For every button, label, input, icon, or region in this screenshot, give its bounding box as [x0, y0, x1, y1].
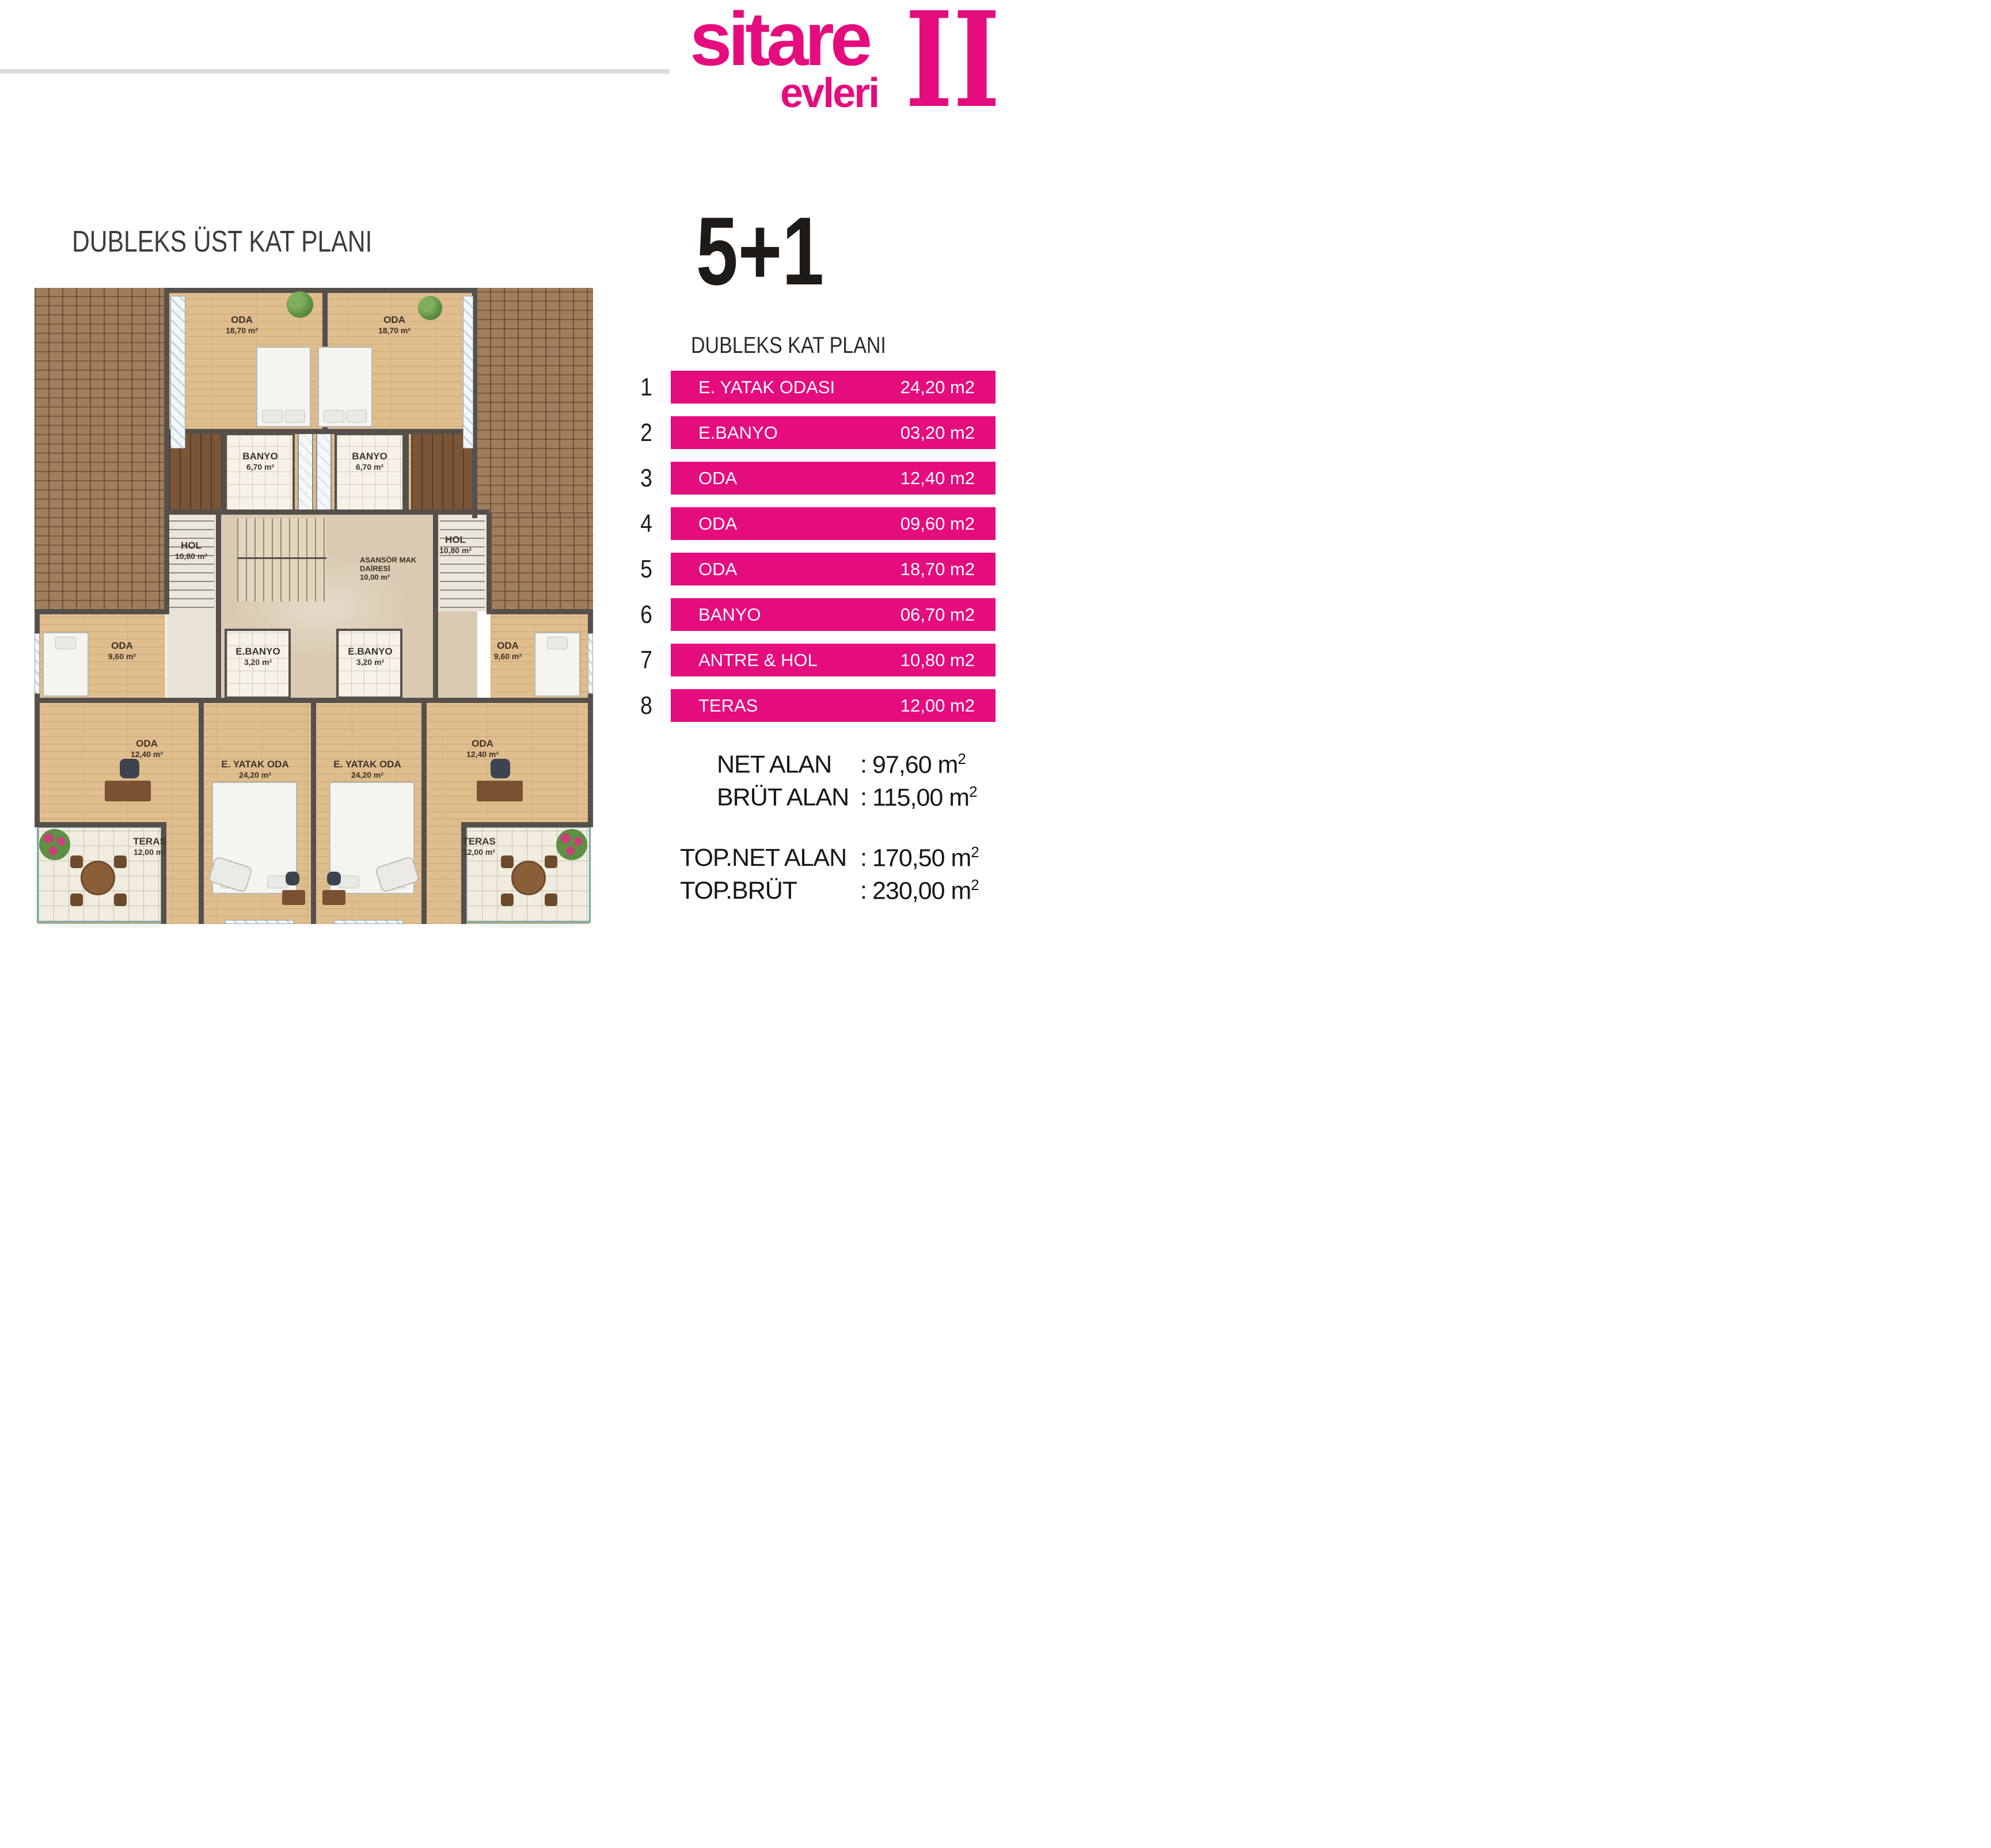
room-name: HOL — [439, 534, 472, 546]
summary-brut-alan: BRÜT ALAN : 115,00 m2 — [717, 781, 977, 814]
summary-label: BRÜT ALAN — [717, 784, 855, 812]
brand-logo: sitare evleri II — [685, 0, 995, 138]
wall — [199, 699, 204, 924]
stairs-left-icon — [168, 516, 214, 608]
table-row: 2 E.BANYO 03,20 m2 — [622, 416, 995, 449]
room-name: ODA — [108, 640, 136, 652]
row-number: 3 — [625, 464, 667, 493]
unit-type-label: 5+1 — [683, 200, 836, 302]
wall — [35, 822, 166, 827]
row-label: E. YATAK ODASI — [671, 377, 900, 398]
row-area: 10,80 m2 — [900, 650, 995, 671]
room-label-oda-small-right: ODA 9,60 m² — [494, 640, 522, 661]
desk-icon — [477, 781, 523, 801]
row-number: 8 — [625, 691, 667, 720]
summary-value: 97,60 m2 — [872, 750, 966, 779]
summary-top-net: TOP.NET ALAN : 170,50 m2 — [680, 842, 979, 874]
light-shaft-left — [298, 433, 313, 512]
row-label: BANYO — [671, 604, 900, 625]
wall — [216, 512, 221, 702]
summary-value-sup: 2 — [957, 750, 965, 767]
room-area: 10,00 m² — [360, 573, 416, 582]
room-area: 9,60 m² — [108, 652, 136, 661]
wall — [222, 431, 227, 514]
light-shaft-right — [316, 433, 332, 512]
room-name: E. YATAK ODA — [221, 759, 288, 770]
row-bar: TERAS 12,00 m2 — [671, 689, 995, 722]
room-name: BANYO — [242, 451, 278, 462]
row-label: E.BANYO — [671, 423, 900, 443]
summary-value-sup: 2 — [969, 783, 976, 800]
stairs-rail — [237, 557, 326, 559]
pillow-icon — [547, 637, 568, 649]
bed-icon — [256, 347, 311, 427]
row-bar: ODA 12,40 m2 — [671, 462, 995, 495]
row-number: 2 — [625, 419, 667, 447]
plan-title: DUBLEKS ÜST KAT PLANI — [72, 225, 372, 259]
room-area: 24,20 m² — [333, 770, 401, 779]
flower-pot-icon — [556, 829, 587, 860]
window-icon — [225, 920, 294, 924]
row-label: ANTRE & HOL — [671, 650, 900, 671]
terrace-chair-icon — [114, 893, 127, 906]
room-name: TERAS — [133, 836, 166, 847]
window-icon — [334, 920, 403, 924]
summary-unit: NET ALAN : 97,60 m2 BRÜT ALAN : 115,00 m… — [717, 748, 977, 814]
room-label-eyatak-left: E. YATAK ODA 24,20 m² — [221, 759, 288, 779]
summary-colon: : — [855, 877, 872, 905]
single-bed-icon — [43, 632, 89, 697]
room-name: E.BANYO — [348, 646, 392, 657]
desk-icon — [105, 781, 151, 801]
plant-icon — [418, 296, 442, 320]
room-name: ODA — [131, 738, 163, 750]
terrace-chair-icon — [70, 893, 83, 906]
room-label-oda-mid-left: ODA 12,40 m² — [131, 738, 163, 759]
table-row: 8 TERAS 12,00 m2 — [622, 689, 995, 722]
wall — [164, 509, 489, 515]
row-bar: BANYO 06,70 m2 — [671, 598, 995, 631]
room-area: 12,40 m² — [131, 750, 163, 759]
pillow-icon — [267, 876, 288, 888]
row-label: ODA — [671, 514, 900, 534]
room-area: 3,20 m² — [348, 657, 392, 667]
window-icon — [463, 296, 473, 448]
row-area: 18,70 m2 — [900, 559, 995, 580]
stairs-right-icon — [440, 516, 485, 608]
room-area: 24,20 m² — [221, 770, 288, 779]
table-row: 4 ODA 09,60 m2 — [622, 507, 995, 540]
summary-value-sup: 2 — [971, 876, 978, 893]
pillow-icon — [284, 410, 305, 423]
logo-word-evleri: evleri — [780, 73, 878, 114]
room-area: 12,00 m² — [133, 847, 166, 857]
summary-colon: : — [855, 844, 872, 872]
room-area: 12,00 m² — [462, 847, 496, 857]
row-bar: ANTRE & HOL 10,80 m2 — [671, 644, 995, 676]
room-label-oda-small-left: ODA 9,60 m² — [108, 640, 136, 661]
terrace-table-icon — [511, 861, 546, 895]
summary-total: TOP.NET ALAN : 170,50 m2 TOP.BRÜT : 230,… — [680, 842, 979, 907]
row-area: 24,20 m2 — [900, 377, 995, 398]
terrace-table-icon — [81, 861, 115, 895]
summary-label: TOP.BRÜT — [680, 877, 855, 905]
header-divider-line — [0, 69, 670, 74]
wall — [164, 288, 169, 614]
room-area: 3,20 m² — [235, 657, 280, 667]
room-label-oda-left: ODA 18,70 m² — [226, 314, 258, 335]
room-name: TERAS — [462, 836, 496, 847]
room-area: 6,70 m² — [352, 462, 387, 471]
room-name: ODA — [226, 314, 258, 326]
pillow-icon — [55, 637, 76, 649]
room-name: HOL — [175, 540, 207, 552]
bed-icon — [318, 347, 373, 427]
wall — [421, 699, 427, 924]
row-bar: E.BANYO 03,20 m2 — [671, 416, 995, 449]
stairs-center-icon — [237, 518, 326, 602]
room-name: ODA — [466, 738, 499, 750]
summary-colon: : — [855, 751, 872, 779]
summary-net-alan: NET ALAN : 97,60 m2 — [717, 748, 977, 781]
row-area: 06,70 m2 — [900, 604, 995, 625]
roof-strip-right-mid — [491, 514, 593, 610]
room-label-asansor: ASANSÖR MAK DAİRESİ 10,00 m² — [360, 556, 416, 582]
summary-top-brut: TOP.BRÜT : 230,00 m2 — [680, 874, 979, 907]
room-label-eyatak-right: E. YATAK ODA 24,20 m² — [333, 759, 401, 779]
room-label-hol-right: HOL 10,80 m² — [439, 534, 472, 555]
row-number: 5 — [625, 555, 667, 584]
single-bed-icon — [534, 632, 580, 697]
room-label-teras-left: TERAS 12,00 m² — [133, 836, 166, 857]
row-area: 12,00 m2 — [900, 695, 995, 716]
pillow-icon — [262, 410, 283, 423]
summary-value: 230,00 m2 — [872, 876, 979, 905]
summary-value-text: 97,60 m — [872, 751, 957, 779]
table-row: 5 ODA 18,70 m2 — [622, 553, 995, 585]
plant-icon — [287, 291, 313, 318]
room-name: ASANSÖR MAK — [360, 556, 416, 565]
wall — [487, 512, 492, 614]
room-label-banyo-right: BANYO 6,70 m² — [352, 451, 387, 471]
room-banyo-right — [335, 433, 405, 512]
wall — [311, 699, 316, 924]
terrace-chair-icon — [501, 855, 514, 868]
terrace-chair-icon — [545, 855, 557, 868]
room-name: E. YATAK ODA — [333, 759, 401, 770]
room-area: 18,70 m² — [226, 326, 258, 335]
summary-value-text: 230,00 m — [872, 877, 971, 905]
roof-strip-left — [35, 288, 165, 610]
table-row: 6 BANYO 06,70 m2 — [622, 598, 995, 631]
room-label-banyo-left: BANYO 6,70 m² — [242, 451, 278, 471]
summary-value-sup: 2 — [971, 843, 978, 861]
room-name: ODA — [378, 314, 411, 326]
room-label-ebanyo-left: E.BANYO 3,20 m² — [235, 646, 280, 667]
room-banyo-left — [225, 433, 295, 512]
pillow-icon — [346, 410, 367, 423]
window-icon — [588, 633, 593, 694]
summary-value: 170,50 m2 — [872, 843, 979, 872]
room-label-oda-right: ODA 18,70 m² — [378, 314, 411, 335]
room-name: E.BANYO — [235, 646, 280, 657]
row-number: 7 — [625, 646, 667, 675]
row-area: 09,60 m2 — [900, 514, 995, 534]
flower-pot-icon — [39, 829, 70, 860]
summary-value-text: 115,00 m — [872, 784, 969, 812]
room-name: BANYO — [352, 451, 387, 462]
chair-icon — [286, 872, 299, 885]
roof-strip-right-top — [476, 288, 593, 514]
table-row: 7 ANTRE & HOL 10,80 m2 — [622, 644, 995, 676]
row-label: ODA — [671, 468, 900, 489]
terrace-chair-icon — [545, 893, 557, 906]
room-label-teras-right: TERAS 12,00 m² — [462, 836, 496, 857]
row-area: 03,20 m2 — [900, 423, 995, 443]
page: sitare evleri II DUBLEKS ÜST KAT PLANI 5… — [0, 0, 995, 924]
chair-icon — [491, 759, 510, 778]
room-area: 10,80 m² — [439, 546, 472, 555]
terrace-chair-icon — [114, 855, 127, 868]
chair-icon — [120, 759, 139, 778]
room-label-oda-mid-right: ODA 12,40 m² — [466, 738, 499, 759]
wall — [35, 609, 169, 614]
wall — [404, 431, 409, 514]
room-area: 10,80 m² — [175, 552, 207, 561]
terrace-chair-icon — [70, 855, 83, 868]
terrace-chair-icon — [501, 893, 514, 906]
chair-icon — [327, 872, 341, 885]
room-area: 12,40 m² — [466, 750, 499, 759]
room-label-ebanyo-right: E.BANYO 3,20 m² — [348, 646, 392, 667]
wall — [487, 609, 593, 614]
row-label: ODA — [671, 559, 900, 580]
row-bar: ODA 18,70 m2 — [671, 553, 995, 585]
wall — [164, 429, 477, 434]
logo-word-sitare: sitare — [690, 1, 868, 77]
pillow-icon — [339, 876, 359, 888]
summary-label: TOP.NET ALAN — [680, 844, 855, 872]
summary-label: NET ALAN — [717, 751, 855, 779]
window-icon — [170, 296, 185, 448]
summary-colon: : — [855, 784, 872, 812]
row-area: 12,40 m2 — [900, 468, 995, 489]
row-label: TERAS — [671, 695, 900, 716]
row-number: 4 — [625, 509, 667, 538]
row-bar: ODA 09,60 m2 — [671, 507, 995, 540]
logo-numeral: II — [905, 0, 995, 126]
room-name: ODA — [494, 640, 522, 652]
room-area: 6,70 m² — [242, 462, 278, 471]
wall — [164, 288, 477, 293]
floor-plan: ODA 18,70 m² ODA 18,70 m² BANYO 6,70 m² … — [35, 288, 593, 924]
row-bar: E. YATAK ODASI 24,20 m2 — [671, 371, 995, 404]
table-row: 3 ODA 12,40 m2 — [622, 462, 995, 495]
room-area: 9,60 m² — [494, 652, 522, 661]
wall — [433, 512, 438, 702]
row-number: 1 — [625, 373, 667, 402]
wall — [461, 822, 593, 827]
unit-subtitle: DUBLEKS KAT PLANI — [691, 333, 886, 359]
summary-value: 115,00 m2 — [872, 783, 977, 812]
room-name: DAİRESİ — [360, 565, 416, 573]
table-row: 1 E. YATAK ODASI 24,20 m2 — [622, 371, 995, 404]
window-icon — [35, 633, 40, 694]
summary-value-text: 170,50 m — [872, 845, 971, 872]
room-label-hol-left: HOL 10,80 m² — [175, 540, 207, 561]
row-number: 6 — [625, 600, 667, 629]
desk-icon — [322, 890, 345, 905]
room-area: 18,70 m² — [378, 326, 411, 335]
desk-icon — [282, 890, 305, 905]
pillow-icon — [324, 410, 344, 423]
